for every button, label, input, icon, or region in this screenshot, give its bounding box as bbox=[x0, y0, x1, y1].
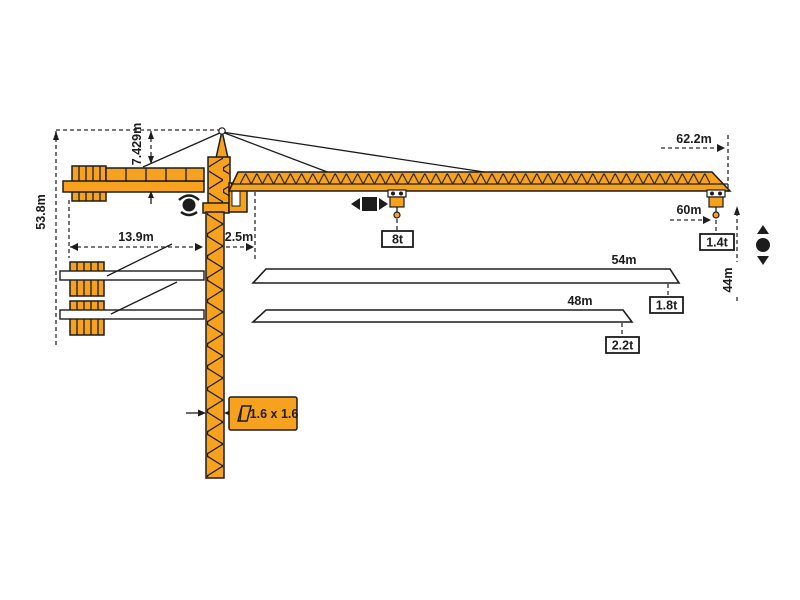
dim-60m: 60m bbox=[670, 203, 711, 224]
alt-counterjib-bar-2 bbox=[60, 310, 204, 319]
tower-head bbox=[208, 128, 230, 204]
tie-bar-jib-inner bbox=[222, 132, 330, 173]
load-box-8t: 8t bbox=[382, 231, 413, 247]
slewing-icon bbox=[179, 196, 199, 216]
counterjib-beam bbox=[63, 181, 204, 192]
counterjib-deck bbox=[106, 168, 204, 181]
tip-load-label: 1.4t bbox=[706, 236, 728, 250]
total-height-label: 53.8m bbox=[34, 194, 48, 229]
alt-jib-48m: 48m 2.2t bbox=[253, 294, 639, 353]
tower-apex-pin bbox=[219, 128, 225, 134]
alt-counterjib-bar-1 bbox=[60, 271, 204, 280]
hook-radius-label: 60m bbox=[676, 203, 701, 217]
crane-diagram-page: 8t 1.4t 53.8m 7.429m 13.9m bbox=[0, 0, 800, 600]
trolley-tip bbox=[707, 190, 725, 218]
dim-13-9m: 13.9m bbox=[69, 200, 203, 258]
alt-counterweight-1 bbox=[60, 244, 204, 296]
tie-bar-jib-outer bbox=[222, 132, 484, 172]
head-height-label: 7.429m bbox=[130, 123, 144, 165]
tower-head-spike bbox=[216, 131, 228, 158]
alt-jib-54m-length-label: 54m bbox=[611, 253, 636, 267]
alt-jib-48m-length-label: 48m bbox=[567, 294, 592, 308]
alt-jib-54m: 54m 1.8t bbox=[253, 253, 683, 313]
main-jib bbox=[229, 172, 730, 191]
hook-tip bbox=[713, 212, 719, 218]
load-box-1-4t: 1.4t bbox=[700, 234, 734, 250]
hoist-icon bbox=[756, 225, 770, 265]
hook-drop-label: 44m bbox=[721, 267, 735, 292]
counterjib-radius-label: 13.9m bbox=[118, 230, 153, 244]
hook-main bbox=[394, 212, 400, 218]
leader-line-2 bbox=[111, 282, 177, 314]
mast-section-label: 1.6 x 1.6 bbox=[250, 407, 299, 421]
jib-lattice bbox=[240, 174, 710, 185]
trolley-main bbox=[388, 190, 406, 218]
alt-jib-48m-tip-load-label: 2.2t bbox=[612, 339, 634, 353]
tie-bars bbox=[143, 132, 484, 173]
mast bbox=[206, 212, 224, 478]
jib-root-offset-label: 2.5m bbox=[225, 230, 254, 244]
crane-diagram-svg: 8t 1.4t 53.8m 7.429m 13.9m bbox=[0, 0, 800, 600]
trolley-travel-icon bbox=[351, 197, 388, 211]
mast-section-box: 1.6 x 1.6 bbox=[186, 397, 298, 430]
alt-jib-54m-tip-load-label: 1.8t bbox=[656, 299, 678, 313]
counter-jib bbox=[63, 166, 204, 201]
max-load-label: 8t bbox=[392, 233, 404, 247]
dim-44m: 44m bbox=[721, 206, 740, 304]
max-radius-label: 62.2m bbox=[676, 132, 711, 146]
